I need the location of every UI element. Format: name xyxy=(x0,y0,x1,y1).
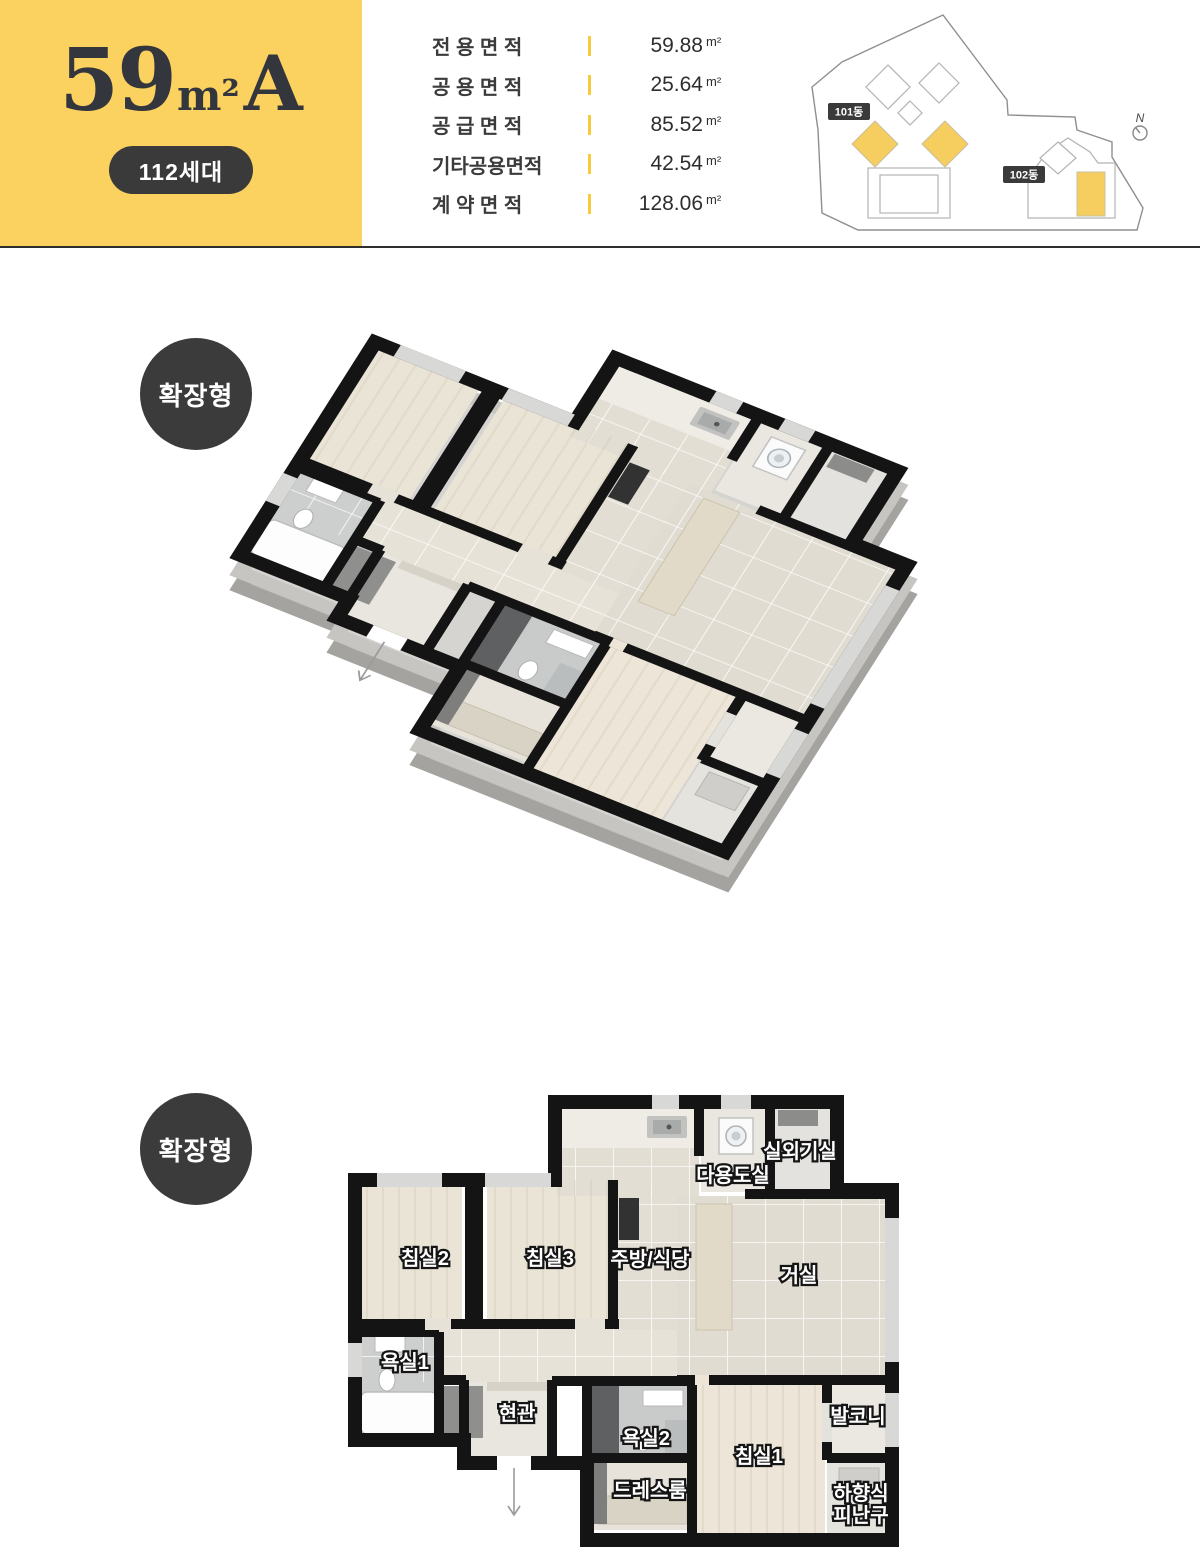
svg-text:102동: 102동 xyxy=(1010,169,1038,182)
unit-sqm: m² xyxy=(177,75,240,117)
area-value: 25.64 xyxy=(591,73,703,97)
floorplan-2d: 침실2 침실3 주방/식당 거실 다용도실 실외기실 욕실1 현관 욕실2 침실… xyxy=(343,1082,903,1564)
area-row-common: 공 용 면 적 25.64 m² xyxy=(432,66,721,106)
room-label-utility: 다용도실 xyxy=(696,1164,770,1187)
room-label-outdoor-unit: 실외기실 xyxy=(763,1140,837,1163)
area-unit: m² xyxy=(706,34,721,49)
area-label: 공 급 면 적 xyxy=(432,110,550,139)
site-plan: 101동 102동 N xyxy=(800,0,1200,246)
area-value: 128.06 xyxy=(591,192,703,216)
area-row-exclusive: 전 용 면 적 59.88 m² xyxy=(432,26,721,66)
area-value: 85.52 xyxy=(591,113,703,137)
unit-title: 59 m² A xyxy=(59,38,303,124)
area-unit: m² xyxy=(706,113,721,128)
room-label-bath2: 욕실2 xyxy=(622,1427,670,1450)
svg-text:N: N xyxy=(1136,111,1145,125)
room-label-bedroom3: 침실3 xyxy=(526,1247,574,1270)
room-label-bedroom2: 침실2 xyxy=(401,1247,449,1270)
unit-number: 59 xyxy=(59,38,175,124)
area-label: 계 약 면 적 xyxy=(432,189,550,218)
room-label-escape-line1: 하향식 xyxy=(833,1482,888,1505)
plan2d-badge-label: 확장형 xyxy=(159,1131,234,1168)
room-label-bath1: 욕실1 xyxy=(381,1351,429,1374)
plan2d-badge: 확장형 xyxy=(140,1093,252,1205)
area-value: 42.54 xyxy=(591,152,703,176)
svg-text:101동: 101동 xyxy=(835,106,863,119)
area-unit: m² xyxy=(706,192,721,207)
area-unit: m² xyxy=(706,153,721,168)
households-badge: 112세대 xyxy=(109,146,253,194)
room-label-kitchen: 주방/식당 xyxy=(610,1248,690,1271)
building-101-badge: 101동 xyxy=(828,103,870,120)
area-label: 전 용 면 적 xyxy=(432,31,550,60)
room-label-balcony: 발코니 xyxy=(830,1405,885,1428)
unit-title-block: 59 m² A 112세대 xyxy=(0,0,362,246)
area-label: 기타공용면적 xyxy=(432,150,550,179)
area-label: 공 용 면 적 xyxy=(432,71,550,100)
north-compass-icon: N xyxy=(1133,111,1147,140)
highlight-unit-102 xyxy=(1077,172,1105,216)
area-row-supply: 공 급 면 적 85.52 m² xyxy=(432,105,721,145)
area-value: 59.88 xyxy=(591,34,703,58)
building-102-badge: 102동 xyxy=(1003,166,1045,183)
room-label-dressroom: 드레스룸 xyxy=(613,1479,687,1502)
room-label-entrance: 현관 xyxy=(499,1402,536,1425)
room-label-living: 거실 xyxy=(781,1264,818,1287)
area-table: 전 용 면 적 59.88 m² 공 용 면 적 25.64 m² 공 급 면 … xyxy=(432,26,721,224)
area-row-contract: 계 약 면 적 128.06 m² xyxy=(432,184,721,224)
area-row-other-common: 기타공용면적 42.54 m² xyxy=(432,145,721,185)
header: 59 m² A 112세대 전 용 면 적 59.88 m² 공 용 면 적 2… xyxy=(0,0,1200,248)
room-label-escape-line2: 피난구 xyxy=(833,1504,888,1527)
iso-floorplan xyxy=(200,320,1030,960)
unit-type-letter: A xyxy=(244,46,303,122)
room-label-bedroom1: 침실1 xyxy=(735,1445,783,1468)
area-unit: m² xyxy=(706,74,721,89)
